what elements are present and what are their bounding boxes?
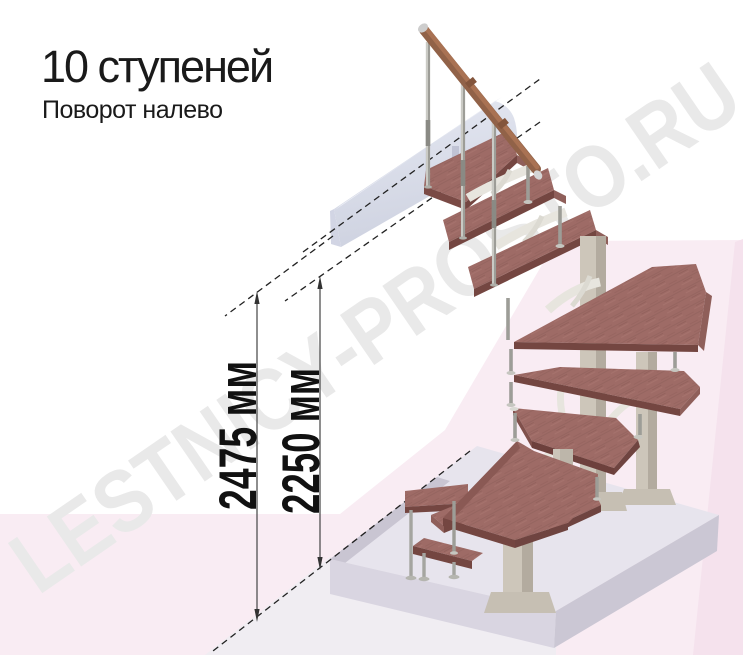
svg-text:2250 мм: 2250 мм: [272, 368, 331, 514]
svg-text:Поворот налево: Поворот налево: [42, 96, 223, 124]
svg-text:2475 мм: 2475 мм: [209, 361, 268, 510]
svg-text:10 ступеней: 10 ступеней: [41, 41, 272, 92]
